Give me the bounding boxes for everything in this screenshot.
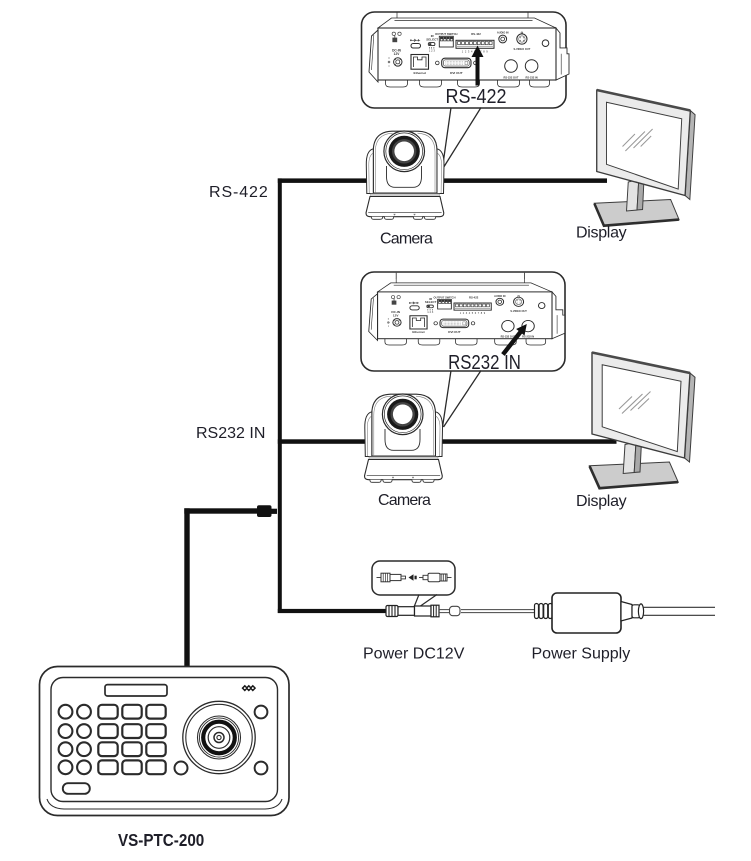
svg-text:Camera: Camera [378, 492, 431, 509]
svg-text:1 2 3 4 5 6 7 8 9: 1 2 3 4 5 6 7 8 9 [460, 312, 486, 315]
svg-text:Camera: Camera [380, 231, 433, 248]
svg-text:1 2 3: 1 2 3 [429, 49, 436, 53]
svg-text:Display: Display [576, 493, 627, 510]
svg-text:RS-422: RS-422 [209, 184, 269, 201]
svg-text:Power DC12V: Power DC12V [363, 645, 465, 662]
svg-text:DVI OUT: DVI OUT [448, 330, 461, 334]
svg-text:OUTPUT SWITCH: OUTPUT SWITCH [434, 296, 456, 299]
svg-text:RS232 IN: RS232 IN [196, 425, 265, 442]
svg-text:SELECT: SELECT [425, 300, 437, 304]
svg-text:Ethernet: Ethernet [414, 71, 427, 75]
svg-text:RS-422: RS-422 [445, 86, 506, 108]
svg-text:RS232 IN: RS232 IN [448, 350, 521, 373]
svg-text:RS-422: RS-422 [469, 296, 479, 300]
svg-text:12V: 12V [394, 52, 401, 56]
svg-text:12V: 12V [393, 314, 399, 318]
svg-text:RS-232 IN: RS-232 IN [526, 75, 538, 79]
svg-text:Power Supply: Power Supply [532, 645, 631, 662]
svg-text:SELECT: SELECT [426, 37, 438, 41]
svg-text:S-VIDEO OUT: S-VIDEO OUT [510, 310, 527, 313]
svg-text:RS-232 IN: RS-232 IN [522, 335, 534, 338]
svg-text:OUTPUT SWITCH: OUTPUT SWITCH [435, 32, 457, 36]
svg-text:RS-422: RS-422 [471, 32, 481, 36]
svg-text:S-VIDEO OUT: S-VIDEO OUT [513, 47, 530, 51]
svg-text:AUDIO IN: AUDIO IN [494, 295, 506, 298]
svg-text:DVI OUT: DVI OUT [450, 71, 463, 75]
svg-text:RS-232 OUT: RS-232 OUT [504, 75, 519, 79]
svg-text:VS-PTC-200: VS-PTC-200 [118, 831, 204, 850]
svg-text:Display: Display [576, 225, 627, 242]
svg-text:AUDIO IN: AUDIO IN [497, 31, 509, 35]
svg-text:1 2 3: 1 2 3 [427, 310, 434, 314]
svg-text:Ethernet: Ethernet [412, 330, 424, 334]
